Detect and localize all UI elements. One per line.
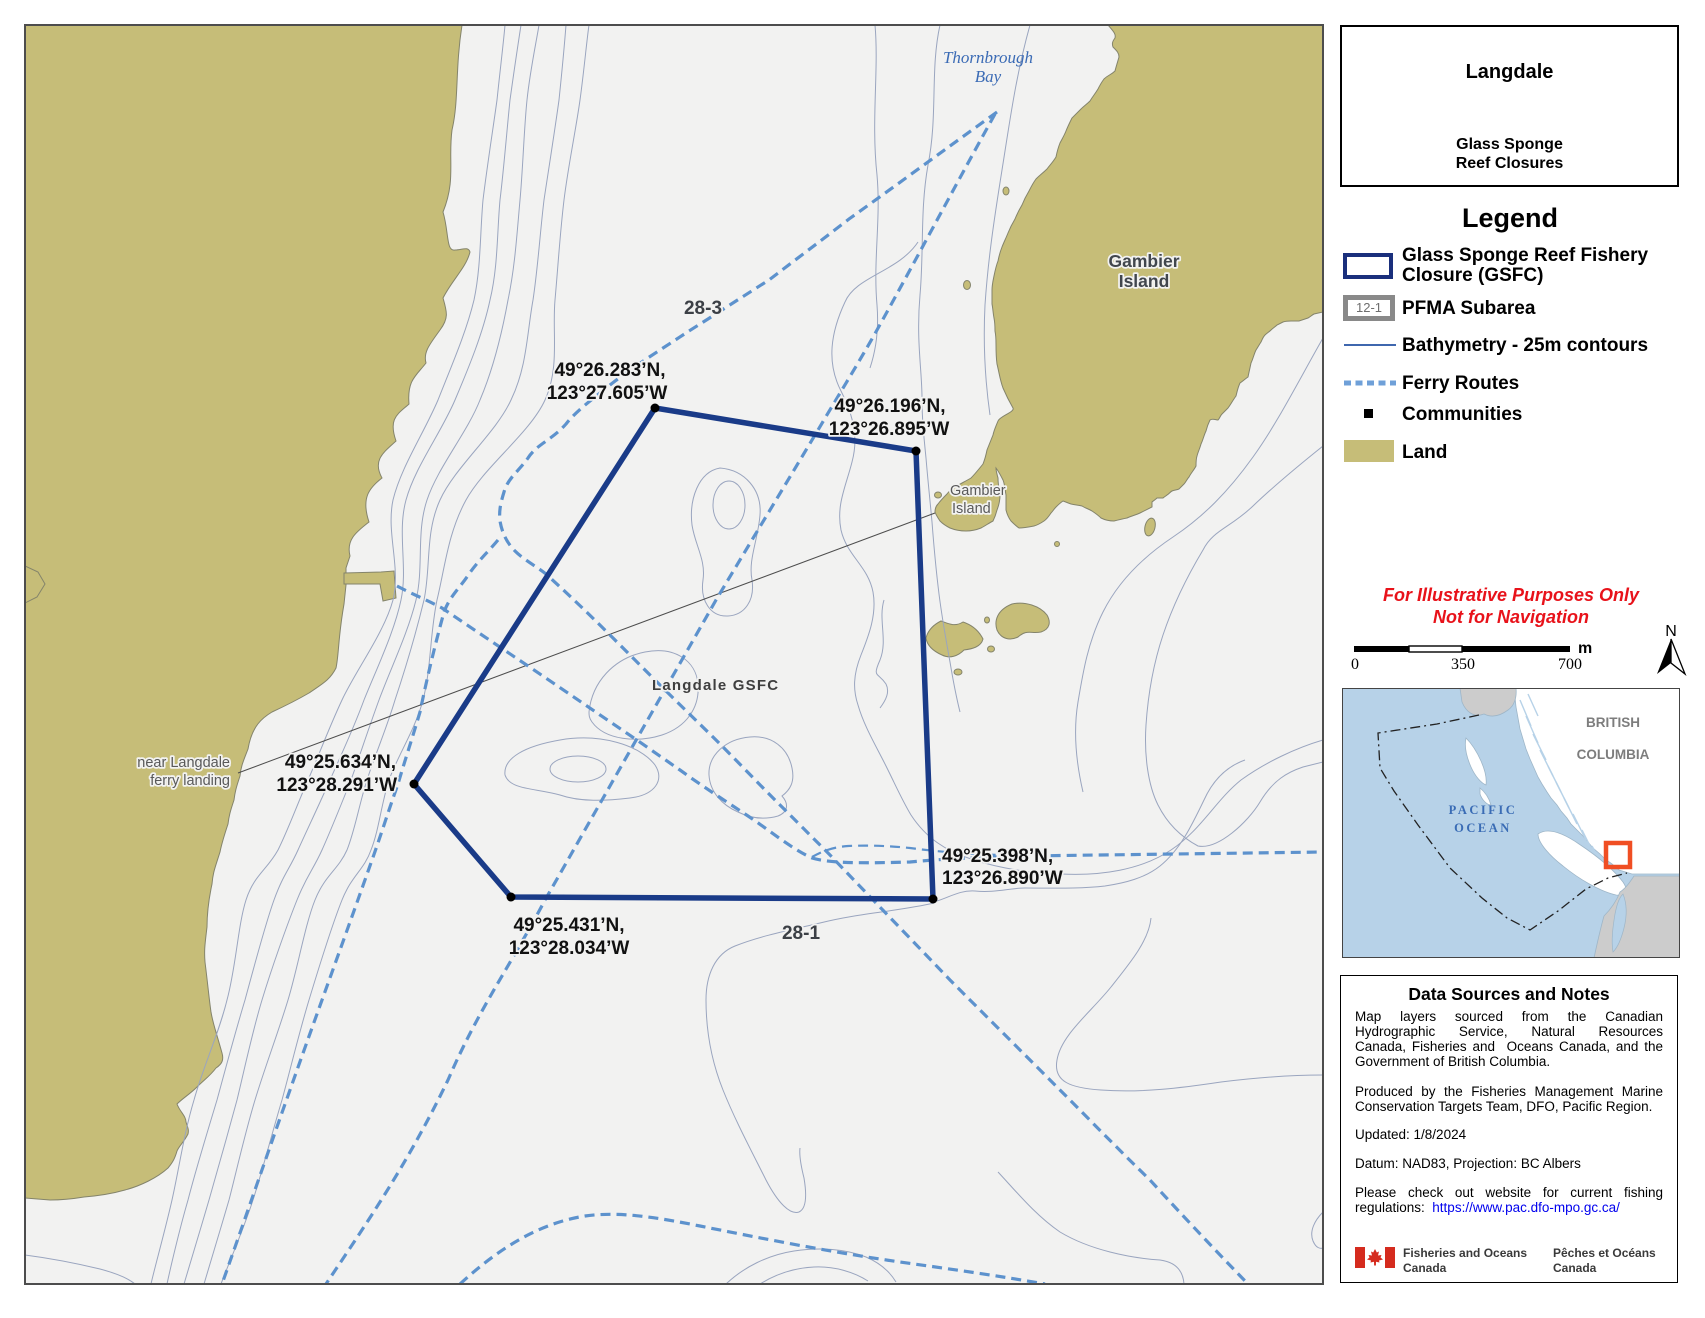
svg-text:Bay: Bay [975, 67, 1002, 86]
svg-text:350: 350 [1451, 656, 1475, 673]
svg-text:PACIFIC: PACIFIC [1449, 803, 1518, 817]
svg-text:ferry landing: ferry landing [150, 773, 230, 789]
svg-text:123°28.034’W: 123°28.034’W [509, 938, 630, 959]
svg-text:123°27.605’W: 123°27.605’W [547, 383, 668, 404]
svg-text:28-3: 28-3 [684, 298, 722, 319]
svg-text:N: N [1665, 623, 1677, 640]
svg-text:COLUMBIA: COLUMBIA [1577, 747, 1650, 762]
svg-text:49°25.431’N,: 49°25.431’N, [513, 915, 624, 936]
svg-text:Langdale GSFC: Langdale GSFC [652, 677, 779, 694]
svg-text:123°28.291’W: 123°28.291’W [276, 775, 397, 796]
svg-text:Island: Island [1119, 271, 1170, 291]
svg-text:Thornbrough: Thornbrough [943, 48, 1033, 67]
svg-text:BRITISH: BRITISH [1586, 715, 1640, 730]
svg-text:49°26.196’N,: 49°26.196’N, [834, 396, 945, 417]
svg-text:0: 0 [1351, 656, 1359, 673]
svg-text:49°25.634’N,: 49°25.634’N, [285, 752, 396, 773]
svg-text:m: m [1578, 640, 1592, 657]
svg-text:123°26.890’W: 123°26.890’W [942, 868, 1063, 889]
svg-text:700: 700 [1558, 656, 1582, 673]
svg-text:Gambier: Gambier [1109, 251, 1180, 271]
svg-text:49°26.283’N,: 49°26.283’N, [554, 360, 665, 381]
svg-text:123°26.895’W: 123°26.895’W [829, 419, 950, 440]
svg-text:near Langdale: near Langdale [137, 755, 230, 771]
svg-text:OCEAN: OCEAN [1454, 821, 1512, 835]
svg-text:Gambier: Gambier [950, 483, 1006, 499]
svg-text:Island: Island [952, 501, 991, 517]
svg-text:28-1: 28-1 [782, 923, 820, 944]
svg-text:49°25.398’N,: 49°25.398’N, [942, 846, 1053, 867]
